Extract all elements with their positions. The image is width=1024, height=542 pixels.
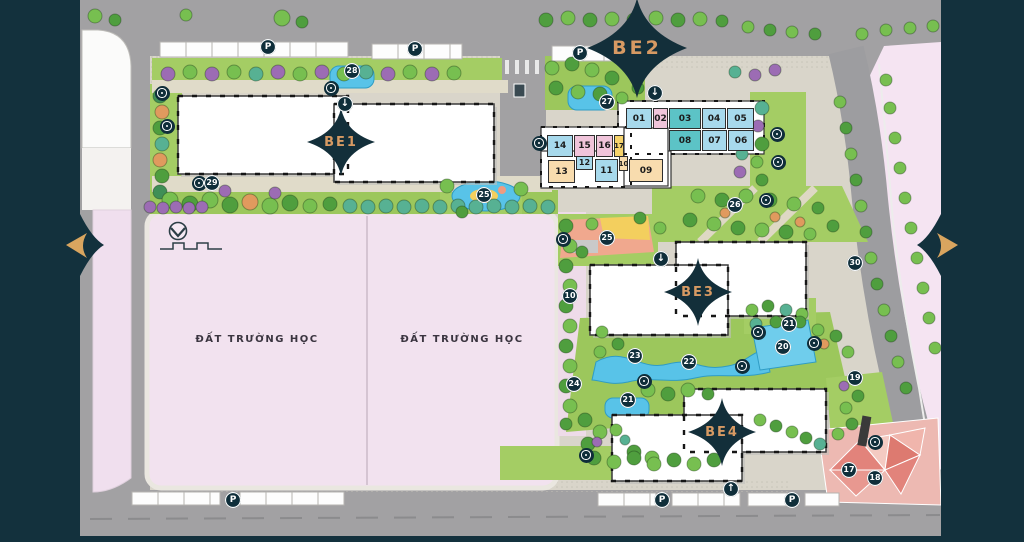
poi-icon[interactable] [751, 325, 766, 340]
amenity-marker-24[interactable]: 24 [566, 376, 582, 392]
bottom-border [0, 536, 1024, 542]
poi-icon[interactable] [532, 136, 547, 151]
zone-be2[interactable]: BE2 [587, 0, 687, 104]
site-plan-map [0, 0, 1024, 542]
unit-06[interactable]: 06 [728, 130, 754, 151]
unit-12[interactable]: 12 [576, 155, 593, 170]
poi-icon[interactable] [324, 81, 339, 96]
school-plot-label: ĐẤT TRƯỜNG HỌC [377, 334, 547, 345]
parking-icon[interactable]: P [572, 45, 588, 61]
poi-icon[interactable] [579, 448, 594, 463]
unit-09[interactable]: 09 [629, 159, 663, 182]
amenity-marker-20[interactable]: 20 [775, 339, 791, 355]
amenity-marker-30[interactable]: 30 [847, 255, 863, 271]
unit-16[interactable]: 16 [596, 135, 613, 157]
zone-be4[interactable]: BE4 [688, 388, 756, 476]
zone-label: BE3 [681, 285, 715, 300]
poi-icon[interactable] [770, 127, 785, 142]
poi-icon[interactable] [807, 336, 822, 351]
amenity-marker-29[interactable]: 29 [204, 175, 220, 191]
parking-icon[interactable]: P [407, 41, 423, 57]
entrance-arrow-icon[interactable]: ↑ [723, 481, 739, 497]
poi-icon[interactable] [868, 435, 883, 450]
west-parcel [82, 30, 131, 148]
unit-04[interactable]: 04 [702, 108, 726, 129]
amenity-marker-26[interactable]: 26 [727, 197, 743, 213]
bus-stop [514, 84, 525, 97]
masterplan-carousel-slide: 01 02 03 04 05 06 07 08 09 10 11 12 13 1… [0, 0, 1024, 542]
unit-03[interactable]: 03 [669, 108, 701, 129]
amenity-marker-10[interactable]: 10 [562, 288, 578, 304]
unit-17[interactable]: 17 [614, 135, 624, 157]
zone-label: BE1 [324, 135, 358, 150]
parking-icon[interactable]: P [260, 39, 276, 55]
parking-icon[interactable]: P [784, 492, 800, 508]
poi-icon[interactable] [759, 193, 774, 208]
amenity-marker-27[interactable]: 27 [599, 94, 615, 110]
west-pink-parcel [93, 210, 131, 492]
amenity-marker-17[interactable]: 17 [841, 462, 857, 478]
amenity-marker-22[interactable]: 22 [681, 354, 697, 370]
unit-14[interactable]: 14 [547, 135, 573, 157]
poi-icon[interactable] [556, 232, 571, 247]
unit-05[interactable]: 05 [727, 108, 754, 129]
poi-icon[interactable] [771, 155, 786, 170]
unit-08[interactable]: 08 [669, 130, 701, 151]
unit-13[interactable]: 13 [548, 160, 575, 183]
poi-icon[interactable] [160, 119, 175, 134]
entrance-arrow-icon[interactable]: ↓ [647, 85, 663, 101]
poi-icon[interactable] [637, 374, 652, 389]
unit-02[interactable]: 02 [653, 108, 668, 129]
parking-icon[interactable]: P [225, 492, 241, 508]
entrance-arrow-icon[interactable]: ↓ [337, 96, 353, 112]
school-land-parcel [147, 212, 557, 488]
unit-07[interactable]: 07 [702, 130, 727, 151]
zone-label: BE2 [612, 37, 662, 59]
unit-10[interactable]: 10 [619, 156, 628, 171]
amenity-marker-25b[interactable]: 25 [599, 230, 615, 246]
amenity-marker-19[interactable]: 19 [847, 370, 863, 386]
amenity-marker-18[interactable]: 18 [867, 470, 883, 486]
zone-be3[interactable]: BE3 [664, 248, 732, 336]
amenity-marker-25a[interactable]: 25 [476, 187, 492, 203]
unit-11[interactable]: 11 [595, 159, 618, 182]
amenity-marker-21b[interactable]: 21 [620, 392, 636, 408]
zone-label: BE4 [705, 425, 739, 440]
amenity-marker-21a[interactable]: 21 [781, 316, 797, 332]
school-plot-label: ĐẤT TRƯỜNG HỌC [172, 334, 342, 345]
unit-01[interactable]: 01 [626, 108, 652, 129]
poi-icon[interactable] [155, 86, 170, 101]
compass-icon [170, 223, 187, 240]
unit-15[interactable]: 15 [574, 135, 595, 157]
entrance-arrow-icon[interactable]: ↓ [653, 251, 669, 267]
amenity-marker-23[interactable]: 23 [627, 348, 643, 364]
amenity-marker-28[interactable]: 28 [344, 63, 360, 79]
poi-icon[interactable] [735, 359, 750, 374]
parking-icon[interactable]: P [654, 492, 670, 508]
